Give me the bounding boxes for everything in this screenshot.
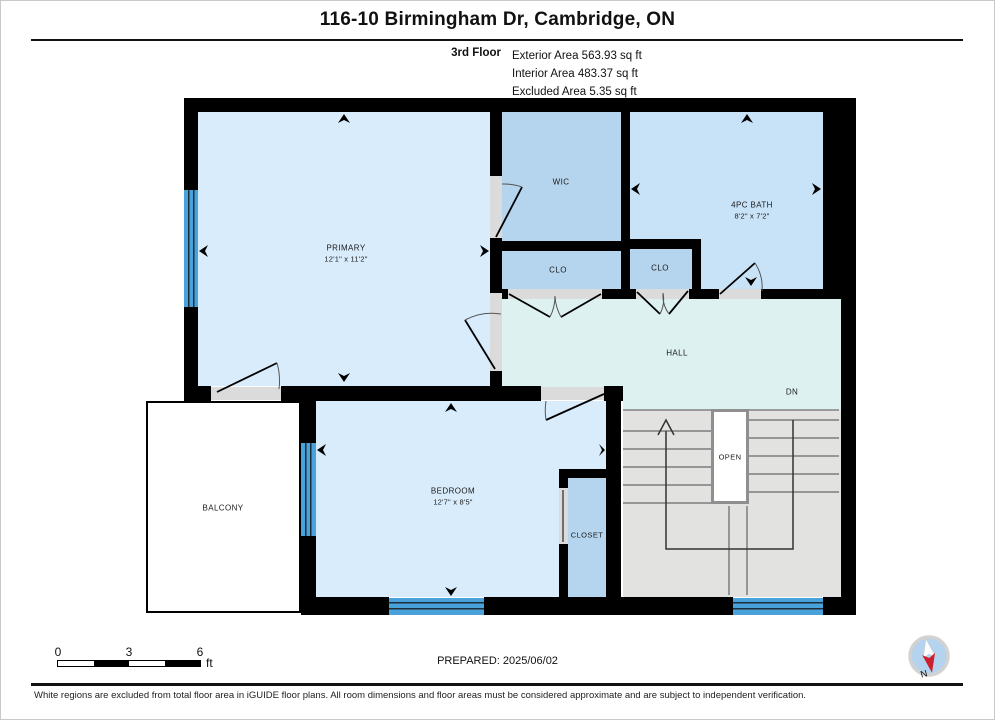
label-open: OPEN bbox=[719, 453, 742, 462]
door-opening-closet bbox=[559, 488, 568, 544]
door-opening-primary bbox=[490, 293, 502, 371]
wall bbox=[301, 536, 316, 597]
label-balcony: BALCONY bbox=[202, 504, 243, 513]
label-bath-dims: 8'2" x 7'2" bbox=[735, 212, 770, 221]
label-bedroom: BEDROOM bbox=[431, 487, 475, 496]
wall bbox=[301, 597, 389, 615]
floorplan-page: 116-10 Birmingham Dr, Cambridge, ON 3rd … bbox=[0, 0, 995, 720]
wall bbox=[602, 289, 636, 299]
window bbox=[389, 598, 484, 615]
window bbox=[184, 190, 198, 307]
wall bbox=[761, 289, 841, 299]
window bbox=[733, 598, 823, 615]
wall bbox=[184, 98, 856, 112]
wall bbox=[606, 386, 621, 597]
wall bbox=[621, 239, 701, 249]
room-hall-lower bbox=[623, 387, 841, 410]
wall bbox=[184, 386, 211, 401]
footer-divider bbox=[31, 683, 963, 686]
wall bbox=[621, 112, 630, 299]
label-clo2: CLO bbox=[651, 264, 669, 273]
prepared-date: PREPARED: 2025/06/02 bbox=[1, 655, 994, 667]
door-opening-balcony bbox=[211, 387, 281, 400]
label-clo1: CLO bbox=[549, 266, 567, 275]
label-wic: WIC bbox=[553, 178, 570, 187]
header-divider bbox=[31, 39, 963, 41]
label-primary-dims: 12'1" x 11'2" bbox=[324, 255, 367, 264]
room-hall bbox=[502, 298, 841, 387]
label-down: DN bbox=[786, 388, 798, 397]
exterior-area: Exterior Area 563.93 sq ft bbox=[512, 47, 642, 65]
area-summary: Exterior Area 563.93 sq ft Interior Area… bbox=[512, 47, 642, 101]
window bbox=[301, 443, 316, 536]
wall bbox=[281, 386, 541, 401]
interior-area: Interior Area 483.37 sq ft bbox=[512, 65, 642, 83]
wall bbox=[184, 98, 198, 190]
disclaimer-text: White regions are excluded from total fl… bbox=[34, 690, 806, 701]
wall bbox=[823, 597, 856, 615]
wall bbox=[484, 597, 733, 615]
wall bbox=[559, 469, 621, 478]
door-opening-wic bbox=[490, 176, 502, 238]
room-wic bbox=[502, 112, 621, 241]
label-primary: PRIMARY bbox=[326, 244, 365, 253]
door-opening-bedroom bbox=[541, 387, 604, 400]
door-opening-clo1 bbox=[508, 289, 602, 299]
wall bbox=[823, 98, 841, 298]
door-opening-clo2 bbox=[636, 289, 689, 299]
wall bbox=[490, 112, 502, 176]
page-title: 116-10 Birmingham Dr, Cambridge, ON bbox=[1, 9, 994, 31]
label-hall: HALL bbox=[666, 349, 688, 358]
wall bbox=[841, 98, 856, 615]
floor-label: 3rd Floor bbox=[381, 47, 501, 59]
door-opening-bath bbox=[719, 289, 761, 299]
label-closet: CLOSET bbox=[571, 531, 603, 540]
compass-north-label: N bbox=[915, 667, 933, 682]
label-bedroom-dims: 12'7" x 8'5" bbox=[433, 498, 472, 507]
wall bbox=[301, 393, 316, 443]
wall bbox=[500, 241, 621, 251]
wall bbox=[689, 289, 719, 299]
label-bath: 4PC BATH bbox=[731, 201, 773, 210]
